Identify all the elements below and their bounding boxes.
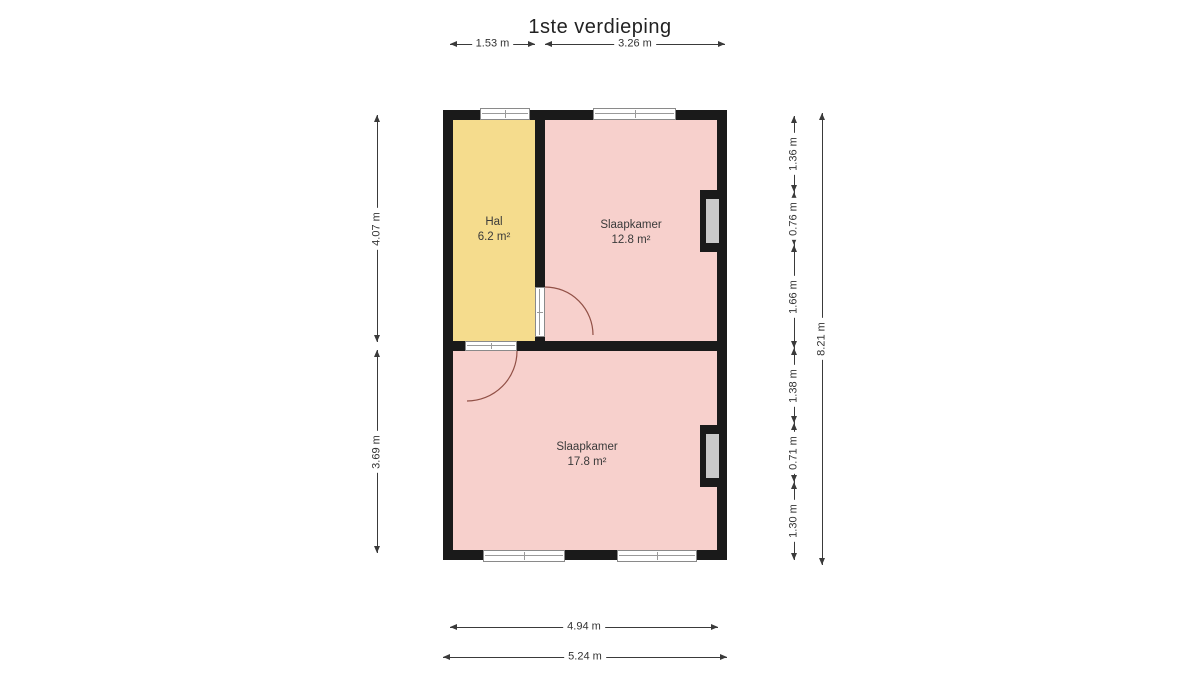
dim-right-seg-1: 1.36 m	[790, 116, 799, 192]
room-name: Slaapkamer	[600, 218, 661, 233]
dim-right-seg-6: 1.30 m	[790, 482, 799, 560]
dim-right-seg-4: 1.38 m	[790, 348, 799, 423]
door-arc-top	[545, 287, 593, 335]
dim-top-hal: 1.53 m	[450, 40, 535, 49]
room-label-slaapkamer-1: Slaapkamer 12.8 m²	[600, 218, 661, 248]
floorplan-page: 1ste verdieping Hal 6.2 m² Slaapkamer 12…	[0, 0, 1200, 675]
dim-right-seg-3: 1.66 m	[790, 245, 799, 348]
dim-right-seg-2: 0.76 m	[790, 192, 799, 245]
door-arc-bottom	[467, 351, 517, 401]
dim-top-slaapkamer: 3.26 m	[545, 40, 725, 49]
room-area: 6.2 m²	[478, 230, 511, 245]
dim-bottom-inner: 4.94 m	[450, 623, 718, 632]
room-area: 17.8 m²	[556, 455, 617, 470]
room-name: Slaapkamer	[556, 440, 617, 455]
dim-right-total: 8.21 m	[818, 113, 827, 565]
dim-left-top: 4.07 m	[373, 115, 382, 342]
door-swing-arcs	[443, 110, 727, 560]
dim-right-seg-5: 0.71 m	[790, 423, 799, 482]
page-title: 1ste verdieping	[0, 16, 1200, 39]
room-area: 12.8 m²	[600, 233, 661, 248]
room-label-hal: Hal 6.2 m²	[478, 215, 511, 245]
room-name: Hal	[478, 215, 511, 230]
room-label-slaapkamer-2: Slaapkamer 17.8 m²	[556, 440, 617, 470]
dim-left-bottom: 3.69 m	[373, 350, 382, 553]
dim-bottom-outer: 5.24 m	[443, 653, 727, 662]
floorplan	[443, 110, 727, 560]
